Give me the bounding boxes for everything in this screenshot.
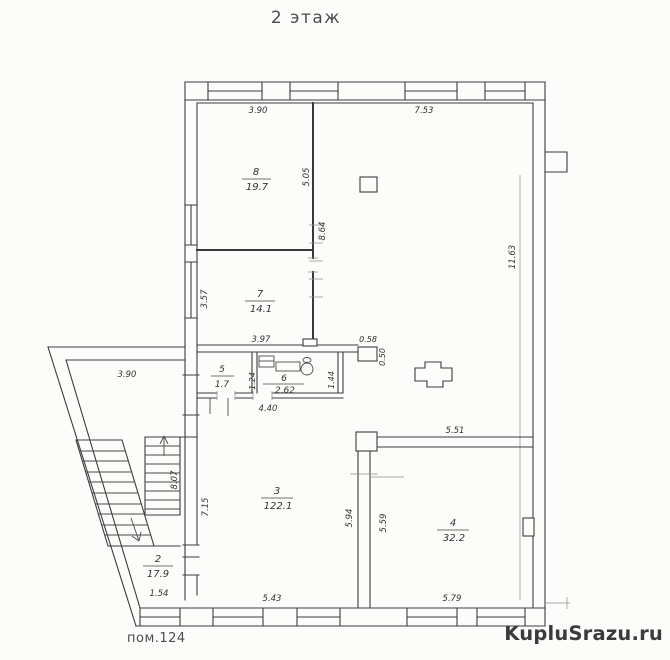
dim-stairs: 8.07 <box>170 470 180 490</box>
top-wall <box>185 82 545 103</box>
dim-room2-bottom: 1.54 <box>150 589 169 599</box>
floor-plan-drawing: 2 этаж <box>0 0 670 660</box>
sink-icon <box>259 356 274 367</box>
svg-text:6: 6 <box>281 374 287 384</box>
annex-bottom-wall <box>136 608 185 626</box>
plan-title: 2 этаж <box>271 8 341 28</box>
dim-room7-height: 3.57 <box>200 289 210 309</box>
svg-text:17.9: 17.9 <box>147 569 169 580</box>
annex-diagonal-wall <box>48 347 140 626</box>
dim-wall87-length: 8.64 <box>318 222 328 241</box>
svg-text:7: 7 <box>257 289 264 300</box>
room-2-label: 2 17.9 <box>143 554 173 580</box>
dim-bottom-left: 5.43 <box>263 594 282 604</box>
door-leaves <box>210 398 228 416</box>
toilet-icon <box>301 363 313 375</box>
dim-bottom-right: 5.79 <box>443 594 462 604</box>
svg-text:14.1: 14.1 <box>250 304 272 315</box>
room6-right-wall <box>338 352 343 393</box>
corridor-bottom-wall <box>197 393 343 398</box>
right-wall <box>520 82 567 626</box>
site-watermark: KupluSrazu.ru <box>504 622 663 645</box>
column-small <box>358 347 377 361</box>
stair-flight-left <box>76 440 154 546</box>
annex-walls <box>48 347 185 626</box>
dim-room4-left: 5.59 <box>379 514 389 533</box>
dim-column-depth: 0.50 <box>378 348 387 366</box>
radiator <box>523 518 534 536</box>
column-corner <box>356 432 377 451</box>
dimension-labels: 3.90 7.53 3.97 0.58 4.40 3.90 5.51 1.54 … <box>118 106 518 604</box>
svg-text:5: 5 <box>219 365 225 375</box>
dim-wc-right: 1.44 <box>327 371 336 389</box>
left-window <box>185 205 197 318</box>
room-7-label: 7 14.1 <box>245 289 275 315</box>
door-notch <box>303 339 317 346</box>
dim-room4-top: 5.51 <box>446 426 465 436</box>
dim-wc-left: 1.24 <box>248 372 257 390</box>
dim-top-right: 7.53 <box>415 106 434 116</box>
room-3-label: 3 122.1 <box>261 486 293 512</box>
wc-fixtures <box>259 356 313 375</box>
column-cross <box>415 362 452 387</box>
left-wall <box>183 82 199 600</box>
svg-text:2.62: 2.62 <box>275 386 295 396</box>
dim-top-left: 3.90 <box>249 106 268 116</box>
room-5-label: 5 1.7 <box>211 365 234 390</box>
exterior-walls <box>48 82 570 626</box>
premises-label: пом.124 <box>127 631 186 646</box>
svg-text:32.2: 32.2 <box>443 533 465 544</box>
dim-room8-height: 5.05 <box>302 168 312 187</box>
svg-text:3: 3 <box>274 486 280 497</box>
dim-wc-width: 4.40 <box>259 404 278 414</box>
dim-room7-width: 3.97 <box>252 335 272 345</box>
bottom-dim-tick <box>545 597 570 609</box>
room-8-label: 8 19.7 <box>242 167 271 193</box>
stair-down-arrow-icon <box>131 518 141 541</box>
counter-icon <box>276 362 300 371</box>
dim-right-wall: 11.63 <box>508 245 518 269</box>
dim-annex-top: 3.90 <box>118 370 137 380</box>
right-wall-pilaster <box>545 152 567 172</box>
svg-text:1.7: 1.7 <box>215 380 230 390</box>
svg-text:19.7: 19.7 <box>246 182 269 193</box>
column-square-hall <box>360 177 377 192</box>
wall-room3-room4 <box>358 451 370 608</box>
svg-text:4: 4 <box>450 518 456 529</box>
dim-room3-left: 7.15 <box>201 498 211 517</box>
room4-top-wall <box>377 437 533 447</box>
svg-text:2: 2 <box>155 554 161 565</box>
room-4-label: 4 32.2 <box>437 518 469 544</box>
svg-text:122.1: 122.1 <box>264 501 293 512</box>
dim-room3-right: 5.94 <box>345 509 355 528</box>
svg-text:8: 8 <box>253 167 259 178</box>
dim-column-width: 0.58 <box>359 335 377 344</box>
corridor-top-wall <box>197 345 358 352</box>
floor-plan-page: 2 этаж <box>0 0 670 660</box>
